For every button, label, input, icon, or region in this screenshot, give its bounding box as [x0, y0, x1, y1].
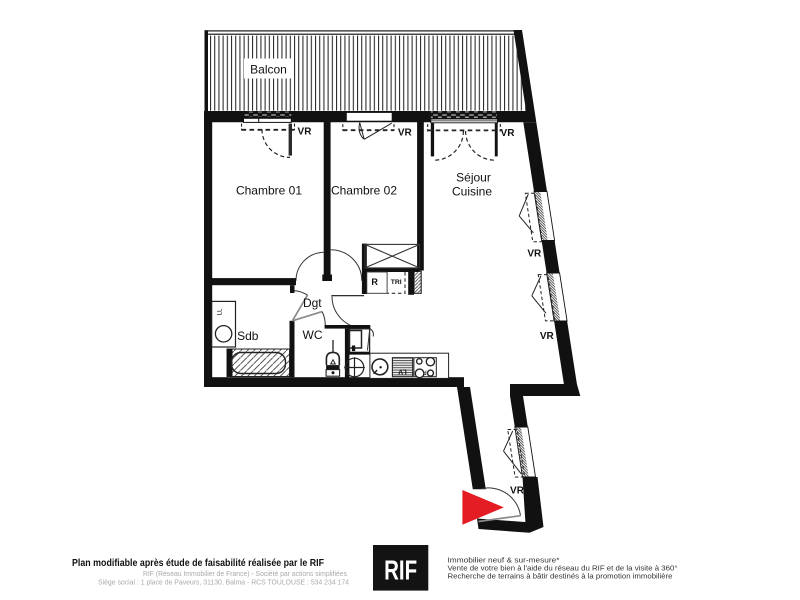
- svg-text:RIF: RIF: [384, 555, 417, 586]
- svg-text:Balcon: Balcon: [250, 63, 287, 77]
- svg-text:Plan modifiable après étude de: Plan modifiable après étude de faisabili…: [72, 558, 324, 569]
- svg-text:WC: WC: [303, 328, 323, 342]
- svg-text:Sdb: Sdb: [237, 329, 259, 343]
- svg-text:VR: VR: [298, 127, 313, 138]
- svg-text:Dgt: Dgt: [303, 296, 322, 310]
- svg-text:Recherche de terrains à bâtir: Recherche de terrains à bâtir destinés à…: [448, 571, 673, 580]
- svg-text:LV: LV: [398, 367, 407, 374]
- svg-text:VR: VR: [398, 128, 413, 139]
- svg-text:Chambre 01: Chambre 01: [236, 183, 302, 197]
- svg-text:R: R: [371, 277, 378, 287]
- svg-text:F: F: [423, 368, 427, 375]
- svg-text:VR: VR: [510, 485, 525, 496]
- svg-text:Séjour: Séjour: [456, 170, 491, 184]
- svg-text:Chambre 02: Chambre 02: [331, 183, 397, 197]
- svg-text:VR: VR: [501, 128, 516, 139]
- svg-text:Cuisine: Cuisine: [452, 184, 492, 198]
- svg-text:Siège social : 1 place de Pave: Siège social : 1 place de Paveurs, 31130…: [98, 578, 349, 587]
- svg-text:TRI: TRI: [391, 279, 402, 286]
- svg-text:VR: VR: [540, 331, 555, 342]
- svg-text:LL: LL: [217, 308, 224, 316]
- svg-text:VR: VR: [527, 248, 542, 259]
